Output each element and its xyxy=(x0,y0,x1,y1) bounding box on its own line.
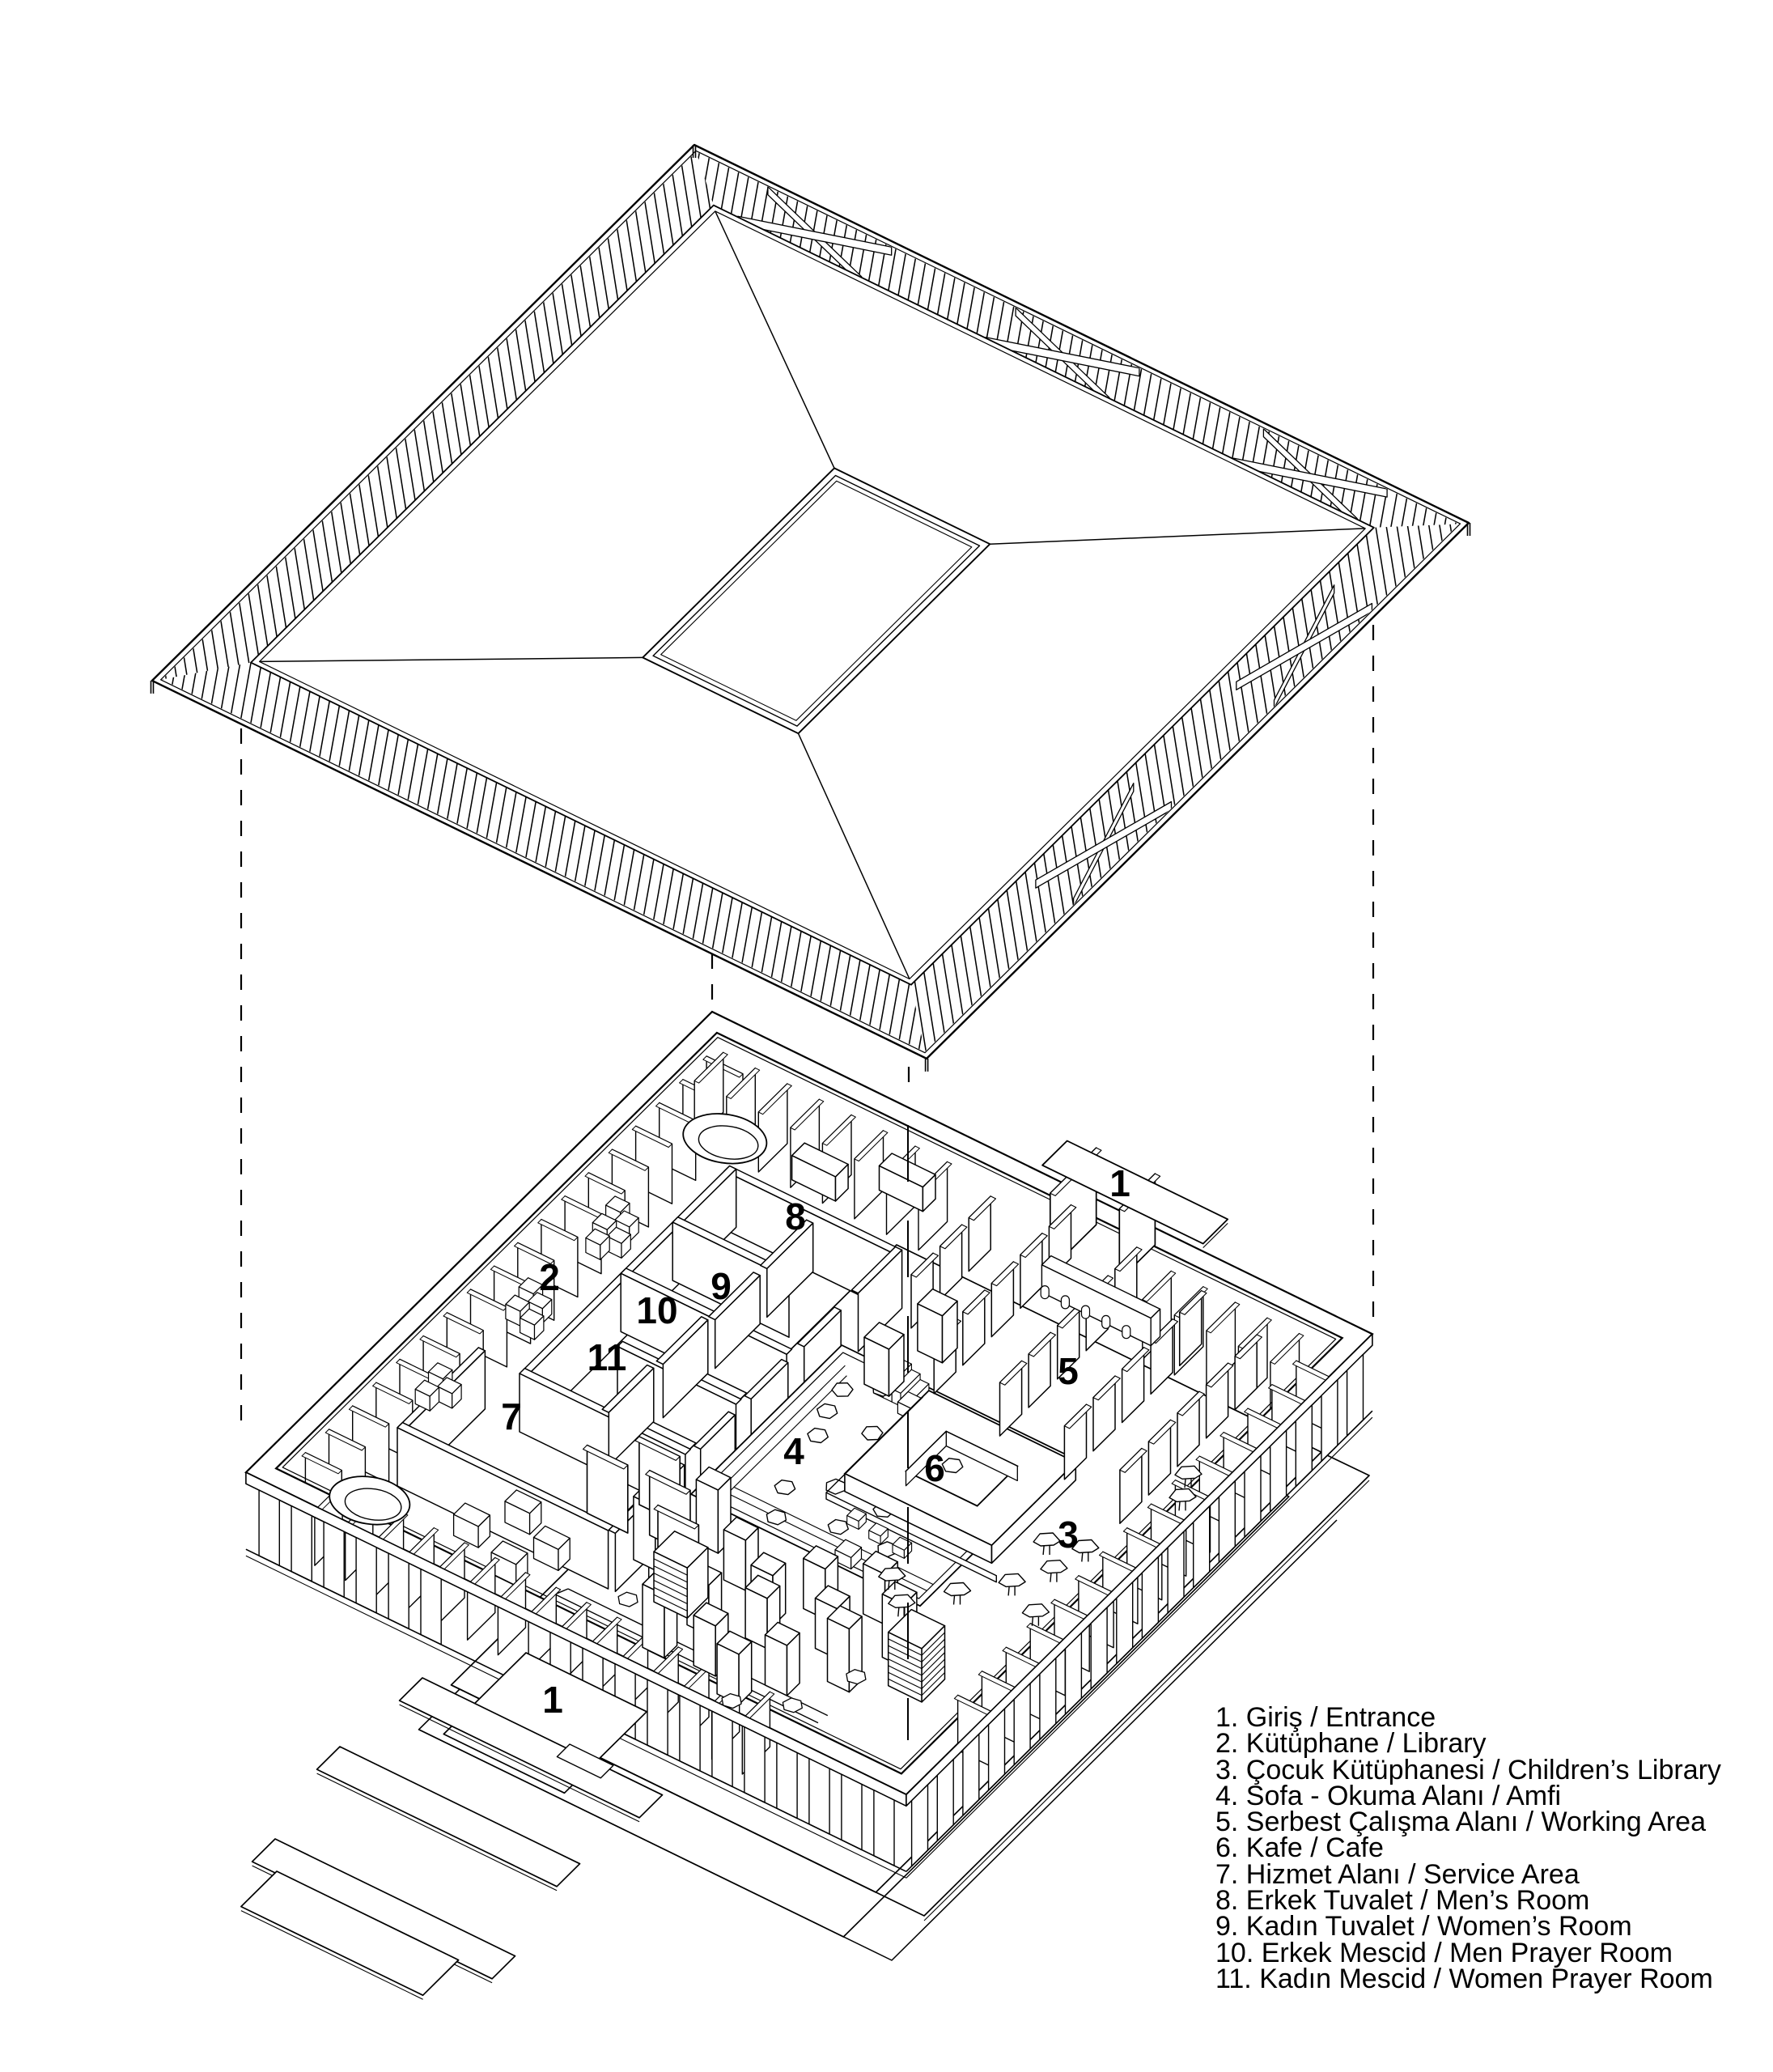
svg-text:10: 10 xyxy=(636,1289,677,1331)
svg-text:7: 7 xyxy=(501,1395,522,1437)
svg-text:3: 3 xyxy=(1058,1514,1079,1556)
svg-text:6: 6 xyxy=(924,1447,945,1489)
svg-text:4: 4 xyxy=(783,1430,804,1472)
svg-text:5: 5 xyxy=(1058,1350,1079,1392)
svg-text:11: 11 xyxy=(587,1336,627,1378)
svg-text:2: 2 xyxy=(539,1256,560,1298)
svg-text:1: 1 xyxy=(542,1679,563,1721)
svg-text:9: 9 xyxy=(710,1265,732,1307)
svg-text:1: 1 xyxy=(1109,1162,1130,1204)
svg-text:11. Kadın Mescid / Women Praye: 11. Kadın Mescid / Women Prayer Room xyxy=(1215,1964,1713,1994)
svg-text:8: 8 xyxy=(785,1195,806,1238)
